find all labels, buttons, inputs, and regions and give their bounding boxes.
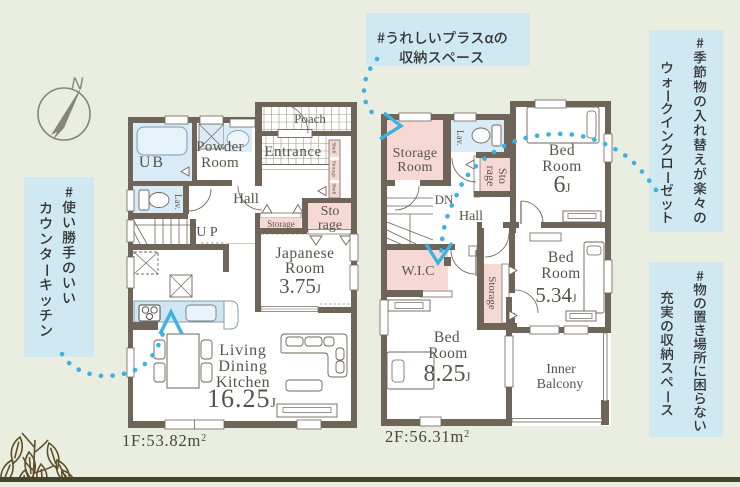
svg-text:Shelf: Shelf [331, 142, 338, 154]
svg-text:Lav.: Lav. [173, 194, 183, 210]
svg-text:Room: Room [201, 155, 239, 171]
svg-text:3.75J: 3.75J [279, 274, 321, 298]
svg-text:Sto: Sto [321, 204, 340, 219]
svg-text:Living: Living [219, 342, 266, 359]
svg-text:Hall: Hall [459, 209, 483, 224]
svg-text:N: N [71, 74, 84, 93]
svg-text:Storage: Storage [331, 161, 337, 178]
svg-text:UB: UB [139, 154, 165, 171]
svg-text:U P: U P [196, 225, 218, 240]
svg-text:1F:53.82m2: 1F:53.82m2 [122, 431, 207, 450]
svg-text:Bed: Bed [549, 142, 575, 159]
svg-text:Dining: Dining [218, 358, 267, 375]
svg-text:Entrance: Entrance [264, 144, 321, 160]
svg-text:Storage: Storage [267, 219, 295, 229]
svg-text:2F:56.31m2: 2F:56.31m2 [385, 427, 470, 446]
svg-text:Balcony: Balcony [537, 377, 584, 392]
svg-text:16.25J: 16.25J [207, 384, 277, 413]
svg-text:8.25J: 8.25J [423, 361, 470, 387]
svg-text:Storage: Storage [486, 276, 498, 310]
svg-text:5.34J: 5.34J [535, 283, 577, 307]
svg-text:Poach: Poach [294, 111, 326, 126]
svg-text:Shelf: Shelf [331, 183, 338, 195]
svg-text:rage: rage [318, 218, 342, 233]
svg-text:Hall: Hall [233, 191, 259, 207]
svg-text:Inner: Inner [546, 362, 576, 377]
svg-text:Lav.: Lav. [455, 130, 465, 146]
svg-text:Bed: Bed [548, 249, 574, 266]
svg-text:Room: Room [541, 265, 581, 282]
svg-text:Room: Room [397, 160, 432, 175]
svg-text:rage: rage [484, 166, 498, 187]
svg-text:Bed: Bed [434, 329, 460, 346]
svg-text:Storage: Storage [393, 146, 438, 161]
svg-text:W.I.C: W.I.C [402, 264, 435, 279]
svg-text:Powder: Powder [196, 139, 244, 155]
svg-text:Room: Room [428, 345, 468, 362]
